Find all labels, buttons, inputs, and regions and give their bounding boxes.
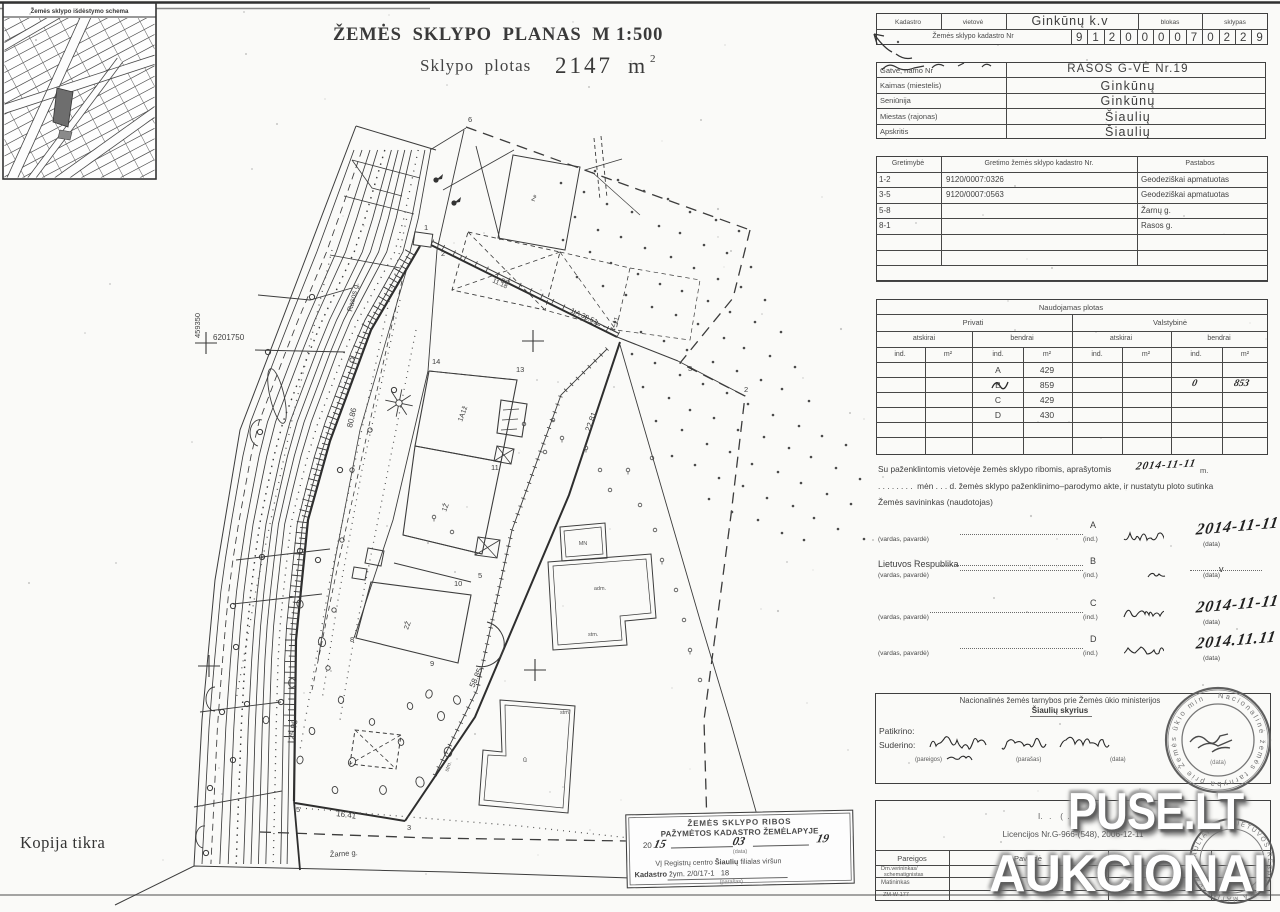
svg-text:Sklypo plotas: Sklypo plotas [420,56,531,75]
svg-text:2: 2 [744,385,748,394]
svg-text:13: 13 [516,365,524,374]
svg-text:1Ž: 1Ž [439,501,450,512]
svg-text:stm.: stm. [560,710,571,716]
svg-text:Žemės sklypo išdėstymo schema: Žemės sklypo išdėstymo schema [30,7,129,15]
svg-text:16.41: 16.41 [336,809,358,821]
svg-text:2: 2 [650,53,656,65]
svg-text:8: 8 [350,635,354,644]
svg-text:(data): (data) [1210,760,1226,766]
svg-text:Žarne g.: Žarne g. [330,848,358,859]
svg-text:25.98: 25.98 [287,719,299,741]
svg-text:Ž: Ž [530,193,538,203]
svg-text:58.85: 58.85 [468,666,485,688]
svg-text:2: 2 [441,249,445,258]
svg-text:5: 5 [478,571,482,580]
svg-text:9: 9 [430,659,434,668]
svg-text:stm.: stm. [588,632,599,638]
svg-text:14: 14 [432,357,440,366]
svg-text:2147: 2147 [555,53,613,78]
svg-text:80.86: 80.86 [345,406,358,428]
svg-text:5: 5 [296,805,300,814]
svg-text:Rasos g.: Rasos g. [345,282,360,313]
svg-text:6201750: 6201750 [213,333,245,342]
svg-text:2Ž: 2Ž [401,619,412,630]
svg-text:1 A 39.51: 1 A 39.51 [569,307,599,326]
svg-text:ū: ū [523,757,527,764]
svg-text:10: 10 [454,579,462,588]
svg-text:22.81: 22.81 [583,410,598,432]
svg-text:1: 1 [424,223,428,232]
svg-text:1A1ž: 1A1ž [457,405,469,423]
svg-text:11: 11 [491,463,499,472]
svg-text:m: m [628,53,645,78]
svg-text:3: 3 [407,823,411,832]
svg-text:adm.: adm. [594,586,607,592]
svg-text:459350: 459350 [193,313,202,338]
svg-text:ŽEMĖS SKLYPO PLANAS M 1:500: ŽEMĖS SKLYPO PLANAS M 1:500 [333,23,663,45]
svg-text:6: 6 [468,115,472,124]
svg-text:MN: MN [579,541,588,547]
